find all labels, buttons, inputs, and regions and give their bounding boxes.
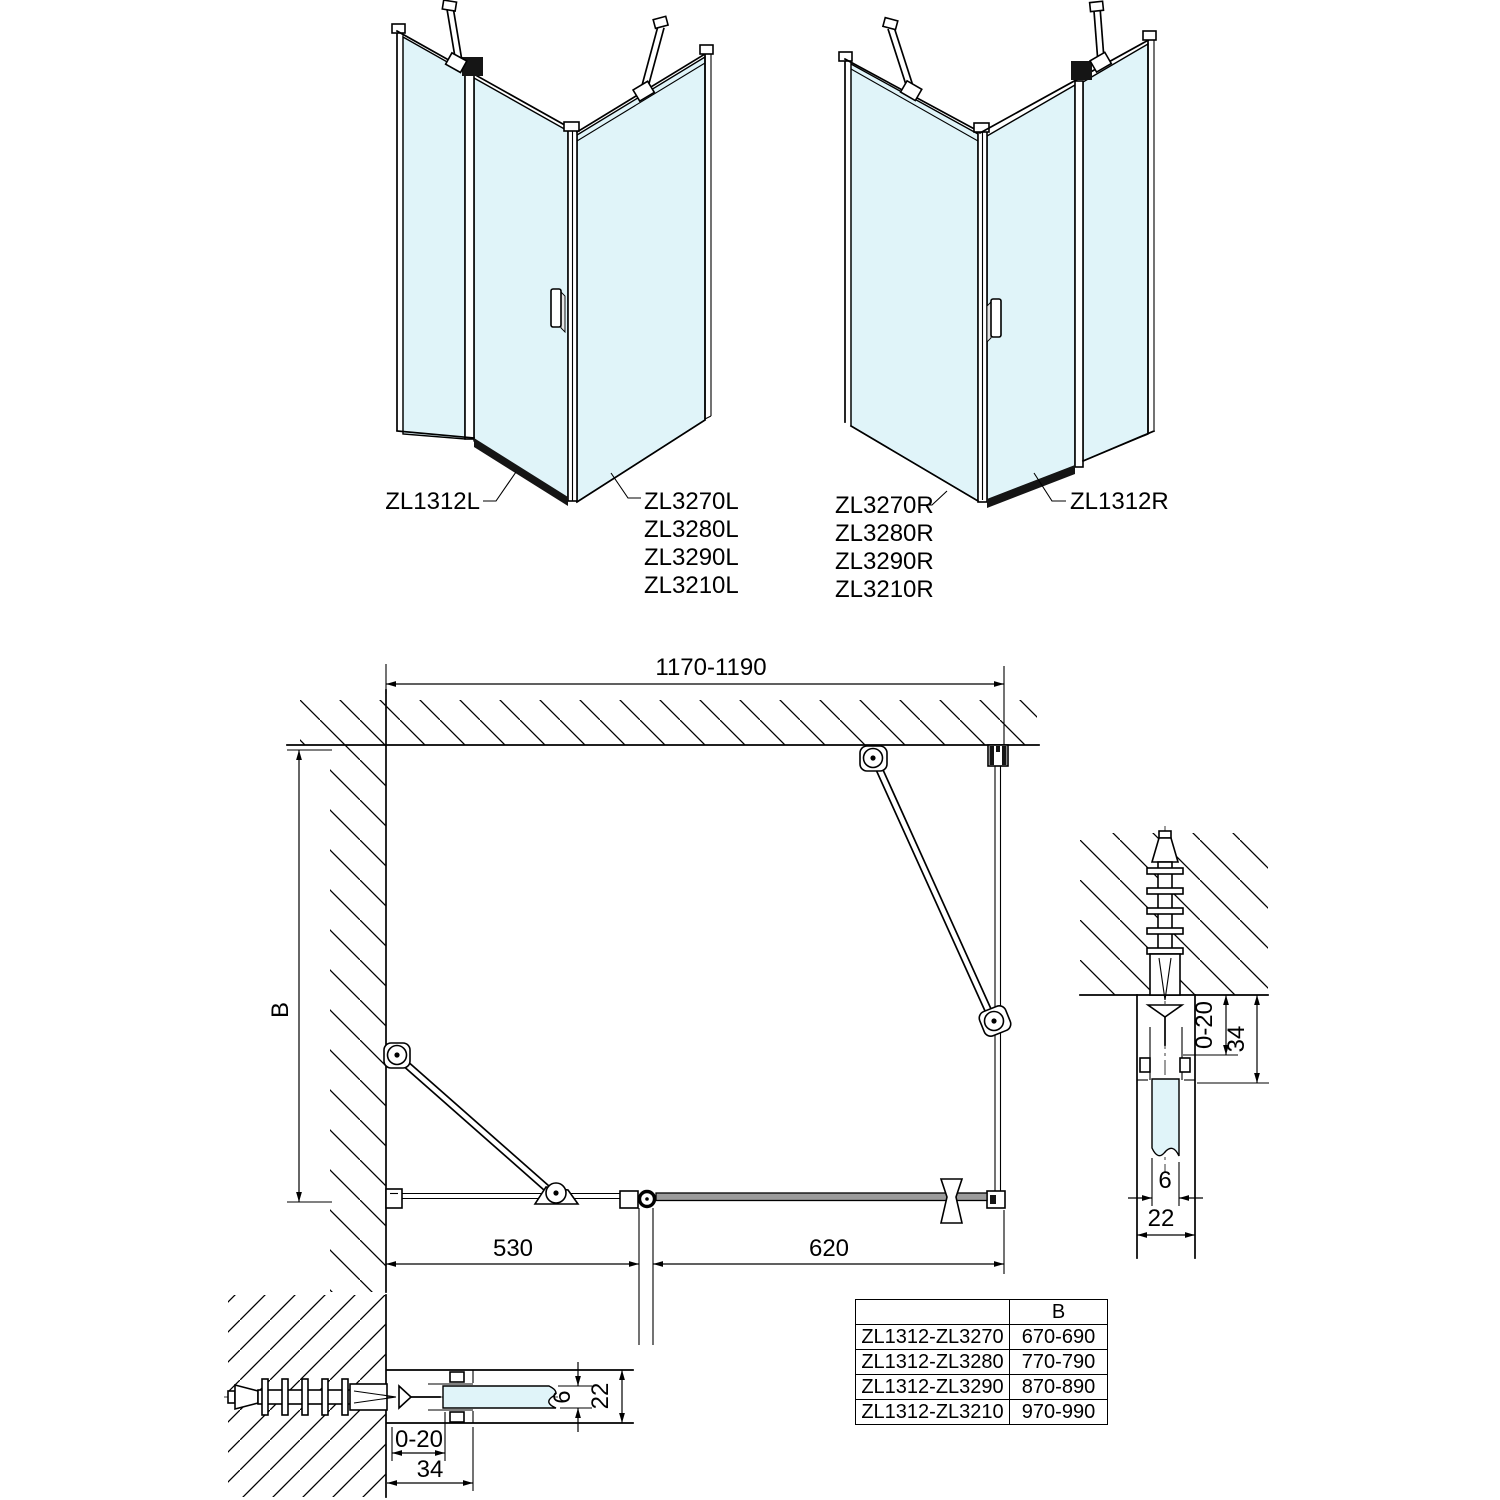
- b-range-cell: 970-990: [1010, 1400, 1108, 1425]
- drawing-canvas: ZL1312L ZL3270L ZL3280L ZL3290L ZL3210L: [0, 0, 1500, 1500]
- table-row: ZL1312-ZL3270 670-690: [856, 1325, 1108, 1350]
- panel-glass: [851, 64, 978, 501]
- model-cell: ZL1312-ZL3210: [856, 1400, 1010, 1425]
- label-panel-right-3: ZL3290R: [835, 548, 934, 575]
- dim-glass: 6: [1158, 1167, 1171, 1194]
- dim-profile: 34: [1223, 1026, 1250, 1053]
- table-row: ZL1312-ZL3210 970-990: [856, 1400, 1108, 1425]
- dim-adjust: 0-20: [395, 1426, 443, 1453]
- support-strut-icon: [1090, 1, 1112, 72]
- label-panel-left-2: ZL3280L: [644, 516, 739, 543]
- support-strut-icon: [860, 746, 1013, 1038]
- label-panel-right-2: ZL3280R: [835, 520, 934, 547]
- hinge-profile: [1075, 81, 1083, 467]
- b-range-cell: 770-790: [1010, 1350, 1108, 1375]
- fixed-panel-plan: [620, 1179, 987, 1223]
- panel-glass: [577, 57, 705, 502]
- table-row: ZL1312-ZL3290 870-890: [856, 1375, 1108, 1400]
- detail-section-bottom: 0-20 34 6 22: [224, 1295, 633, 1497]
- table-header-model: [856, 1300, 1010, 1325]
- label-panel-left-4: ZL3210L: [644, 572, 739, 599]
- dim-thickness: 22: [1148, 1205, 1175, 1232]
- leader-line: [483, 472, 516, 501]
- iso-view-left: ZL1312L ZL3270L ZL3280L ZL3290L ZL3210L: [385, 0, 739, 599]
- label-panel-right-1: ZL3270R: [835, 492, 934, 519]
- wall-hatch-top: [300, 700, 1037, 745]
- dim-door: 530: [493, 1235, 533, 1262]
- side-panel-plan: [987, 745, 1008, 1208]
- hinge-profile: [465, 72, 474, 439]
- hinge-block: [1071, 61, 1092, 80]
- door-handle: [551, 289, 565, 332]
- detail-section-right: 0-20 34 6 22: [1080, 826, 1269, 1258]
- technical-drawing-page: ZL1312L ZL3270L ZL3280L ZL3290L ZL3210L: [0, 0, 1500, 1500]
- glass-section: [1152, 1079, 1179, 1156]
- model-cell: ZL1312-ZL3290: [856, 1375, 1010, 1400]
- dim-adjust: 0-20: [1191, 1001, 1218, 1049]
- dim-thickness: 22: [587, 1383, 614, 1410]
- label-panel-right-4: ZL3210R: [835, 576, 934, 603]
- side-glass-strip: [403, 37, 465, 439]
- door-plan: [386, 1189, 620, 1208]
- table-header-row: B: [856, 1300, 1108, 1325]
- table-row: ZL1312-ZL3280 770-790: [856, 1350, 1108, 1375]
- plan-view: 1170-1190 B: [267, 654, 1039, 1345]
- table-header-b: B: [1010, 1300, 1108, 1325]
- size-table: B ZL1312-ZL3270 670-690 ZL1312-ZL3280 77…: [855, 1299, 1108, 1425]
- label-door-left: ZL1312L: [385, 488, 480, 515]
- label-door-right: ZL1312R: [1070, 488, 1169, 515]
- b-range-cell: 670-690: [1010, 1325, 1108, 1350]
- door-glass: [987, 85, 1075, 500]
- glass-section: [443, 1386, 556, 1408]
- door-swing-arm: [384, 1043, 578, 1204]
- dim-fixed: 620: [809, 1235, 849, 1262]
- model-cell: ZL1312-ZL3270: [856, 1325, 1010, 1350]
- dim-width: 1170-1190: [655, 654, 766, 681]
- model-cell: ZL1312-ZL3280: [856, 1350, 1010, 1375]
- iso-view-right: ZL3270R ZL3280R ZL3290R ZL3210R ZL1312R: [835, 1, 1169, 603]
- b-range-cell: 870-890: [1010, 1375, 1108, 1400]
- dim-profile: 34: [417, 1456, 444, 1483]
- door-handle: [987, 299, 1001, 342]
- dim-depth: B: [267, 1002, 294, 1018]
- side-glass-strip: [1083, 44, 1148, 461]
- dim-glass: 6: [549, 1390, 576, 1403]
- wall-hatch-left: [330, 745, 386, 1292]
- label-panel-left-3: ZL3290L: [644, 544, 739, 571]
- label-panel-left-1: ZL3270L: [644, 488, 739, 515]
